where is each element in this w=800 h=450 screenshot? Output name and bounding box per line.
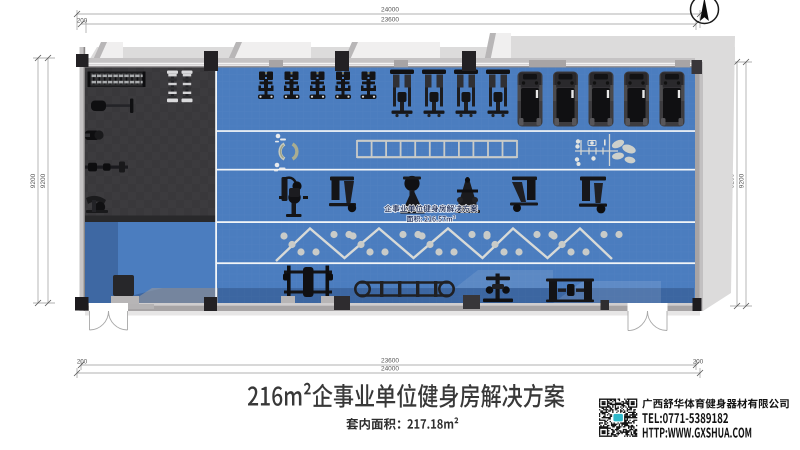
- svg-text:9200: 9200: [40, 173, 47, 188]
- svg-text:200: 200: [77, 359, 88, 366]
- svg-text:9200: 9200: [30, 173, 37, 188]
- svg-text:24000: 24000: [381, 366, 399, 373]
- svg-text:200: 200: [693, 359, 704, 366]
- svg-text:23600: 23600: [381, 17, 399, 24]
- svg-text:23600: 23600: [381, 358, 399, 365]
- svg-text:200: 200: [77, 18, 88, 25]
- svg-text:9200: 9200: [739, 173, 746, 188]
- svg-text:24000: 24000: [381, 7, 399, 14]
